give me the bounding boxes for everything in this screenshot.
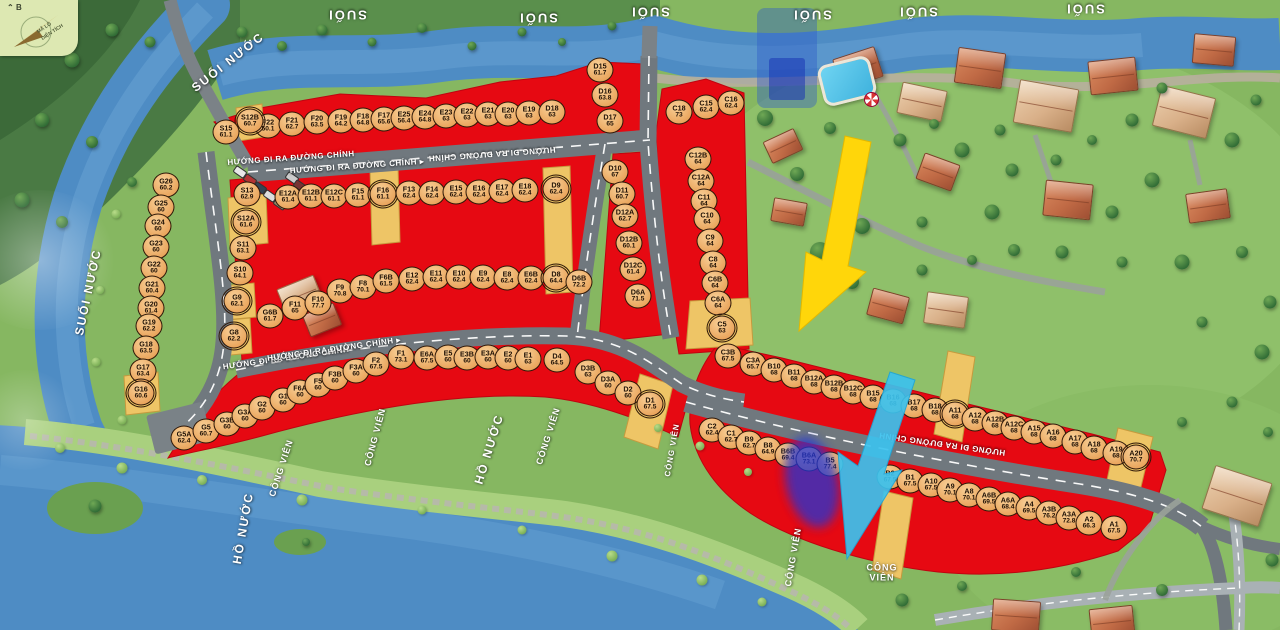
compass-legend: ⌃ B MÃ LÔ DIỆN TÍCH bbox=[0, 0, 78, 56]
site-plan-screenshot: F22 50.1 F21 62.7 F20 63.5 F19 64.2 F18 … bbox=[0, 0, 1280, 630]
yellow-arrow bbox=[799, 136, 871, 331]
cyan-arrow bbox=[838, 372, 915, 559]
blue-highlight-blob bbox=[777, 432, 847, 533]
annotation-overlay bbox=[0, 0, 1280, 630]
